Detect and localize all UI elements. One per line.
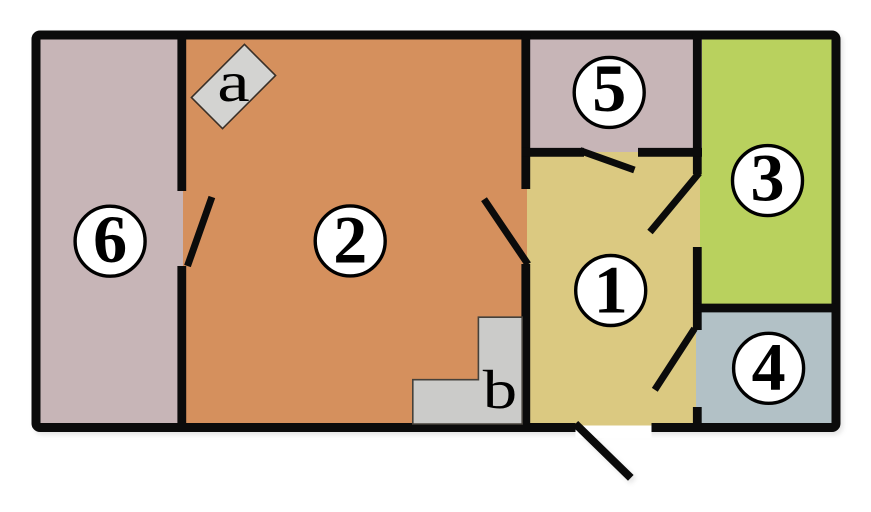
svg-text:1: 1	[594, 252, 628, 328]
svg-text:2: 2	[333, 202, 367, 278]
svg-text:3: 3	[751, 140, 785, 216]
svg-text:6: 6	[93, 201, 127, 277]
svg-text:a: a	[217, 51, 250, 114]
svg-text:4: 4	[752, 329, 786, 405]
svg-text:5: 5	[592, 50, 626, 126]
svg-text:b: b	[483, 359, 517, 420]
